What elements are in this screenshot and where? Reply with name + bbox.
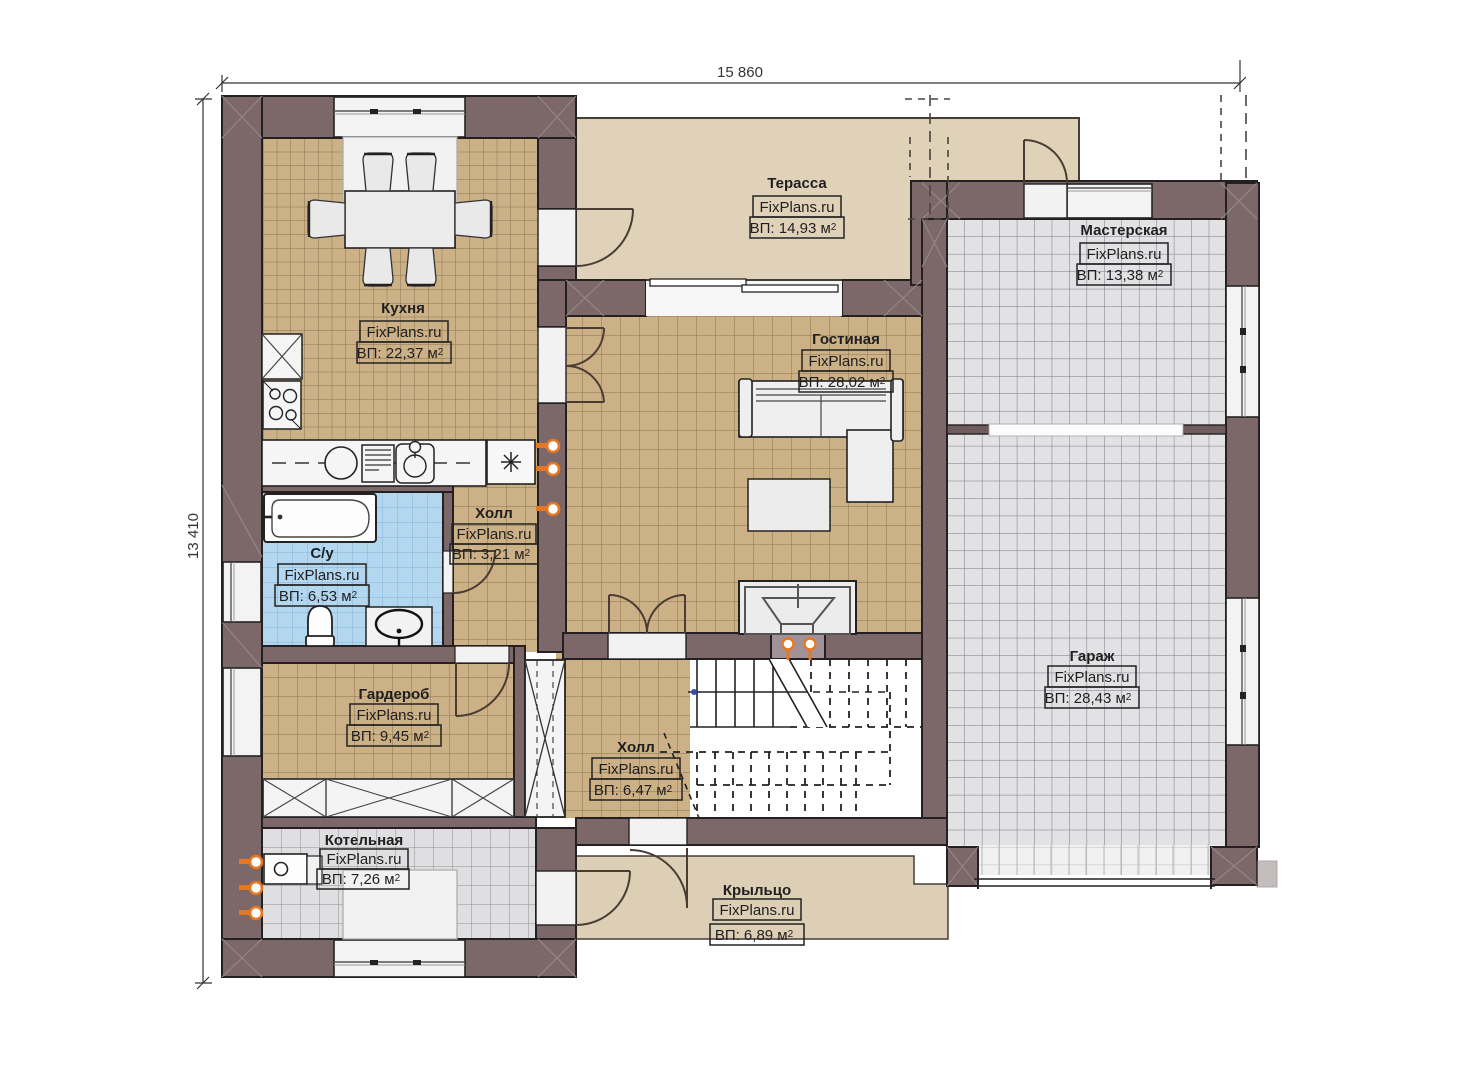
svg-text:Котельная: Котельная [325, 832, 404, 849]
svg-text:ВП: 14,93 м2: ВП: 14,93 м2 [750, 220, 837, 237]
svg-text:FixPlans.ru: FixPlans.ru [284, 567, 359, 584]
svg-text:Холл: Холл [475, 505, 513, 522]
svg-text:Терасса: Терасса [767, 175, 827, 192]
svg-text:ВП: 6,47 м2: ВП: 6,47 м2 [594, 782, 673, 799]
svg-text:FixPlans.ru: FixPlans.ru [1086, 246, 1161, 263]
svg-text:Крыльцо: Крыльцо [723, 882, 791, 899]
svg-text:FixPlans.ru: FixPlans.ru [456, 526, 531, 543]
svg-text:Мастерская: Мастерская [1080, 222, 1167, 239]
svg-text:Кухня: Кухня [381, 300, 425, 317]
svg-text:Гостиная: Гостиная [812, 331, 880, 348]
svg-text:FixPlans.ru: FixPlans.ru [356, 707, 431, 724]
svg-text:Гардероб: Гардероб [359, 686, 430, 703]
svg-text:FixPlans.ru: FixPlans.ru [759, 199, 834, 216]
svg-text:ВП: 7,26 м2: ВП: 7,26 м2 [322, 871, 401, 888]
svg-text:ВП: 6,53 м2: ВП: 6,53 м2 [279, 588, 358, 605]
svg-text:С/у: С/у [310, 545, 334, 562]
svg-text:13 410: 13 410 [185, 513, 202, 559]
svg-text:FixPlans.ru: FixPlans.ru [598, 761, 673, 778]
svg-text:ВП: 13,38 м2: ВП: 13,38 м2 [1077, 267, 1164, 284]
svg-text:ВП: 22,37 м2: ВП: 22,37 м2 [357, 345, 444, 362]
svg-text:FixPlans.ru: FixPlans.ru [719, 902, 794, 919]
svg-text:FixPlans.ru: FixPlans.ru [326, 851, 401, 868]
svg-text:15 860: 15 860 [717, 64, 763, 81]
svg-text:ВП: 28,02 м2: ВП: 28,02 м2 [799, 374, 886, 391]
svg-text:ВП: 28,43 м2: ВП: 28,43 м2 [1045, 690, 1132, 707]
svg-text:ВП: 6,89 м2: ВП: 6,89 м2 [715, 927, 794, 944]
svg-text:Холл: Холл [617, 739, 655, 756]
svg-text:ВП: 9,45 м2: ВП: 9,45 м2 [351, 728, 430, 745]
svg-text:FixPlans.ru: FixPlans.ru [1054, 669, 1129, 686]
svg-text:FixPlans.ru: FixPlans.ru [808, 353, 883, 370]
svg-text:FixPlans.ru: FixPlans.ru [366, 324, 441, 341]
svg-text:Гараж: Гараж [1070, 648, 1115, 665]
svg-text:ВП: 3,21 м2: ВП: 3,21 м2 [452, 546, 531, 563]
